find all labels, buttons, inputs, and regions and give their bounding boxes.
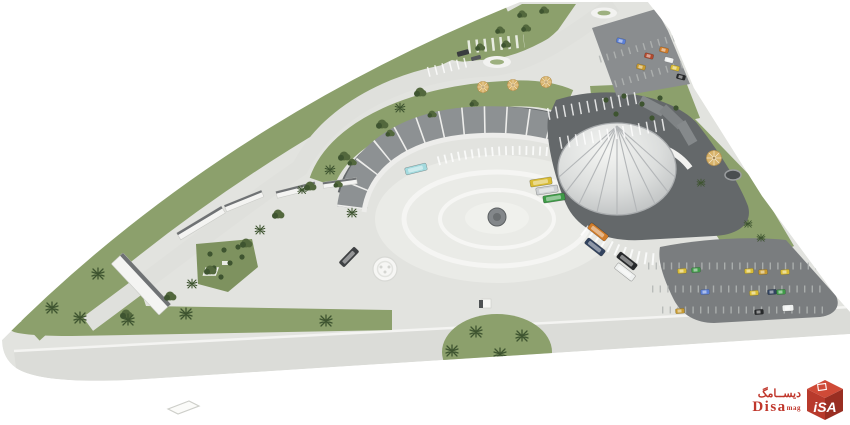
- dome-building: [548, 92, 749, 240]
- east-parking-lot: [648, 238, 838, 323]
- watermark-text: ديســامگ Disamag: [752, 389, 801, 422]
- stray-plan-outline: [168, 401, 199, 414]
- green-mound: [442, 314, 552, 390]
- kiosk: [479, 299, 491, 308]
- pond: [725, 170, 741, 180]
- watermark-suffix: mag: [787, 404, 801, 412]
- watermark-name: Disa: [752, 399, 786, 415]
- watermark-logo-letters: iSA: [813, 399, 836, 415]
- roundabout-island-north: [591, 8, 617, 19]
- roundabout-island-mid: [483, 56, 511, 68]
- site-plan-svg: [0, 0, 850, 425]
- watermark-latin-title: Disamag: [752, 400, 801, 416]
- watermark-logo-cube: iSA: [805, 378, 845, 422]
- plaza-medallion: [373, 257, 397, 281]
- watermark: ديســامگ Disamag iSA: [752, 378, 845, 422]
- architectural-render: ديســامگ Disamag iSA: [0, 0, 850, 425]
